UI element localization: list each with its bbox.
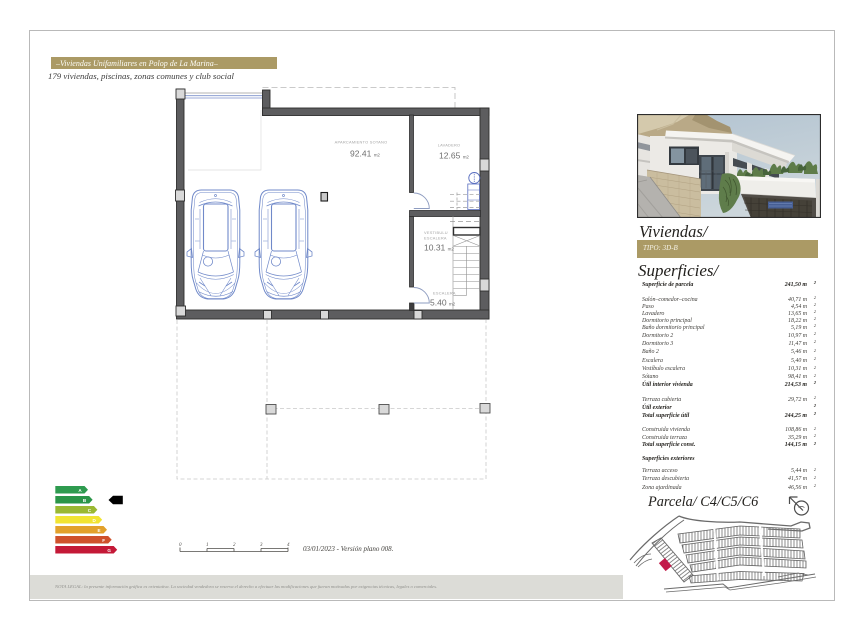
- svg-text:1: 1: [206, 543, 209, 548]
- svg-text:E: E: [97, 528, 100, 533]
- svg-text:VESTIBULU: VESTIBULU: [424, 230, 448, 235]
- svg-text:F: F: [102, 538, 105, 543]
- svg-text:LAVADERO: LAVADERO: [438, 143, 461, 148]
- svg-text:ESCALERA: ESCALERA: [433, 291, 456, 296]
- svg-text:ESCALERA: ESCALERA: [424, 236, 447, 241]
- svg-text:3: 3: [260, 543, 263, 548]
- svg-text:APARCAMIENTO SOTANO: APARCAMIENTO SOTANO: [335, 140, 388, 145]
- svg-text:92.41 m2: 92.41 m2: [350, 149, 380, 159]
- svg-text:10.31 m2: 10.31 m2: [424, 243, 454, 253]
- svg-text:0: 0: [179, 543, 182, 548]
- svg-text:2: 2: [233, 543, 236, 548]
- svg-text:4: 4: [287, 543, 290, 548]
- svg-text:12.65 m2: 12.65 m2: [439, 151, 469, 161]
- svg-text:G: G: [107, 548, 111, 553]
- svg-text:5.40 m2: 5.40 m2: [430, 298, 456, 308]
